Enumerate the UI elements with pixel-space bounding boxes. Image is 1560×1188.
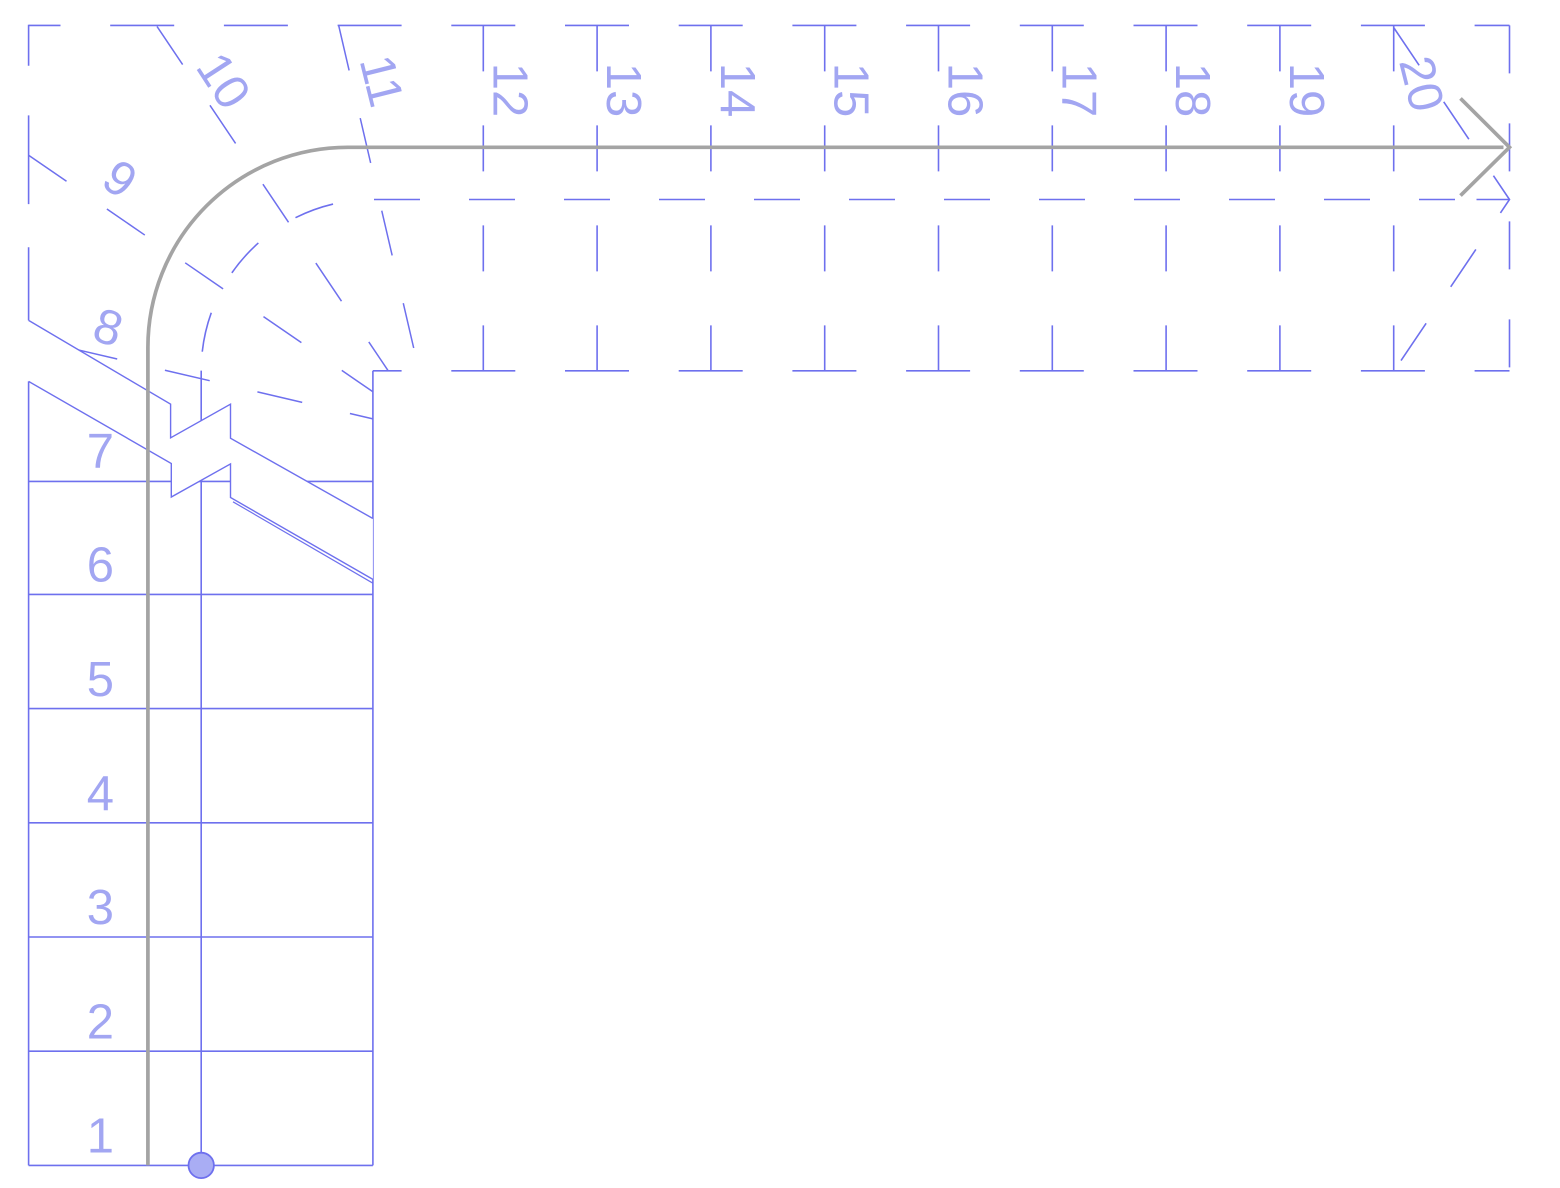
- svg-text:4: 4: [87, 767, 114, 821]
- svg-text:18: 18: [1165, 63, 1219, 118]
- svg-text:2: 2: [87, 995, 114, 1049]
- svg-text:5: 5: [87, 653, 114, 707]
- svg-text:19: 19: [1279, 63, 1333, 118]
- svg-text:15: 15: [824, 63, 878, 118]
- svg-text:7: 7: [87, 424, 114, 478]
- svg-text:16: 16: [938, 63, 992, 118]
- svg-text:1: 1: [87, 1110, 114, 1164]
- svg-text:12: 12: [482, 63, 536, 118]
- svg-text:17: 17: [1051, 63, 1105, 118]
- svg-text:6: 6: [87, 539, 114, 593]
- svg-text:13: 13: [596, 63, 650, 118]
- svg-text:14: 14: [710, 63, 764, 118]
- svg-text:3: 3: [87, 881, 114, 935]
